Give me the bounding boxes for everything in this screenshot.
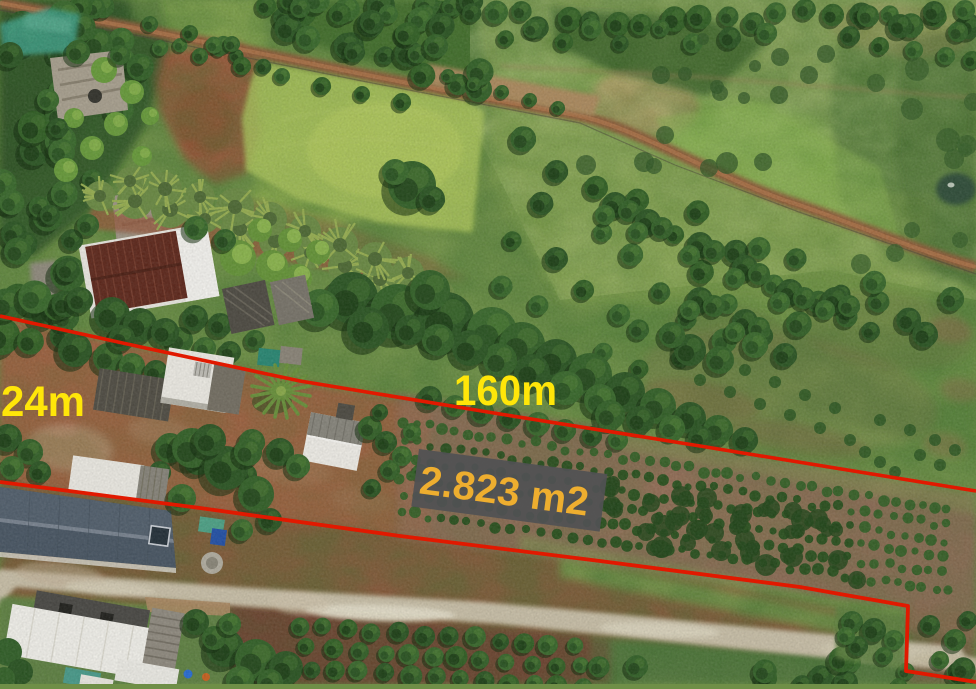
svg-text:160m: 160m <box>454 367 557 415</box>
svg-text:24m: 24m <box>1 378 85 426</box>
